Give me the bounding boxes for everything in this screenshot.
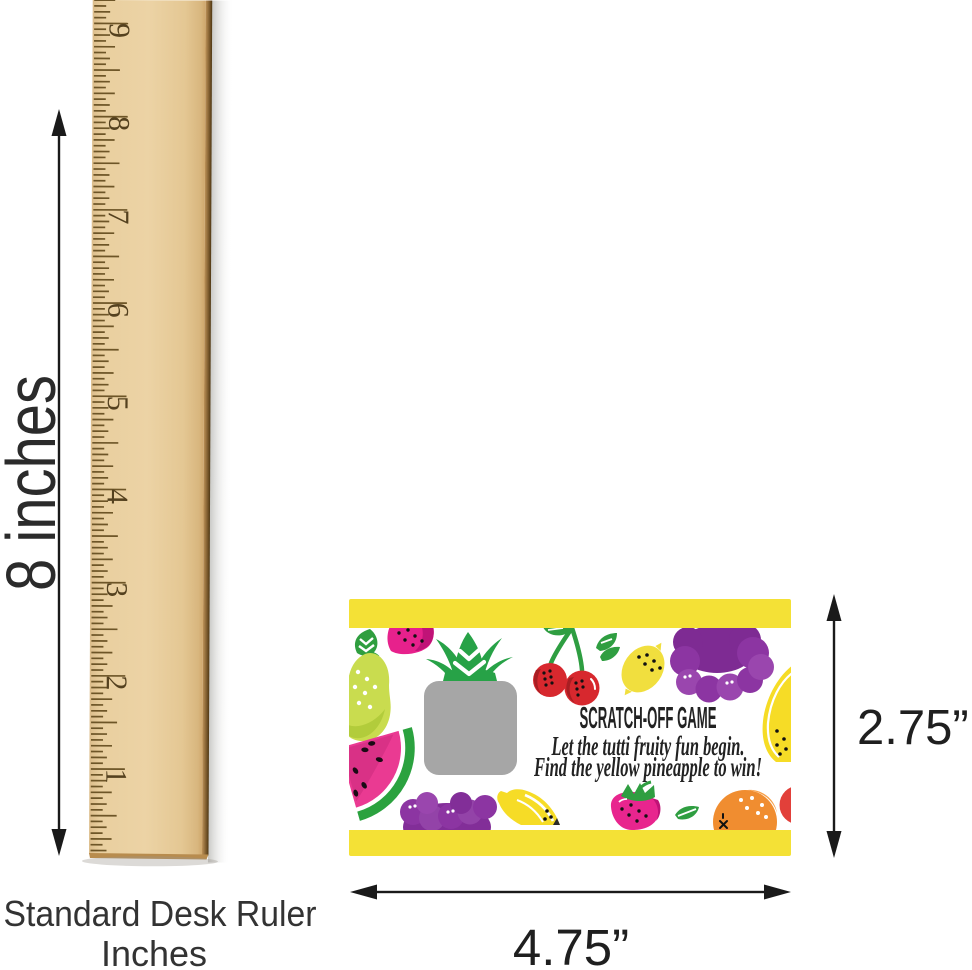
- svg-text:1: 1: [99, 769, 132, 784]
- svg-text:6: 6: [101, 303, 134, 318]
- svg-text:Find the yellow pineapple to w: Find the yellow pineapple to win!: [533, 752, 762, 782]
- svg-text:4.75”: 4.75”: [513, 919, 629, 970]
- svg-text:9: 9: [103, 23, 136, 38]
- svg-text:2.75”: 2.75”: [857, 701, 969, 755]
- svg-text:Inches: Inches: [101, 933, 207, 970]
- svg-text:8: 8: [102, 116, 135, 131]
- svg-text:8 inches: 8 inches: [0, 375, 70, 591]
- svg-text:5: 5: [101, 396, 134, 411]
- svg-text:7: 7: [102, 209, 135, 224]
- svg-text:SCRATCH-OFF GAME: SCRATCH-OFF GAME: [580, 700, 717, 735]
- svg-text:2: 2: [100, 675, 133, 690]
- svg-text:3: 3: [100, 582, 133, 597]
- svg-text:Standard Desk Ruler: Standard Desk Ruler: [4, 893, 317, 934]
- svg-text:4: 4: [101, 489, 134, 504]
